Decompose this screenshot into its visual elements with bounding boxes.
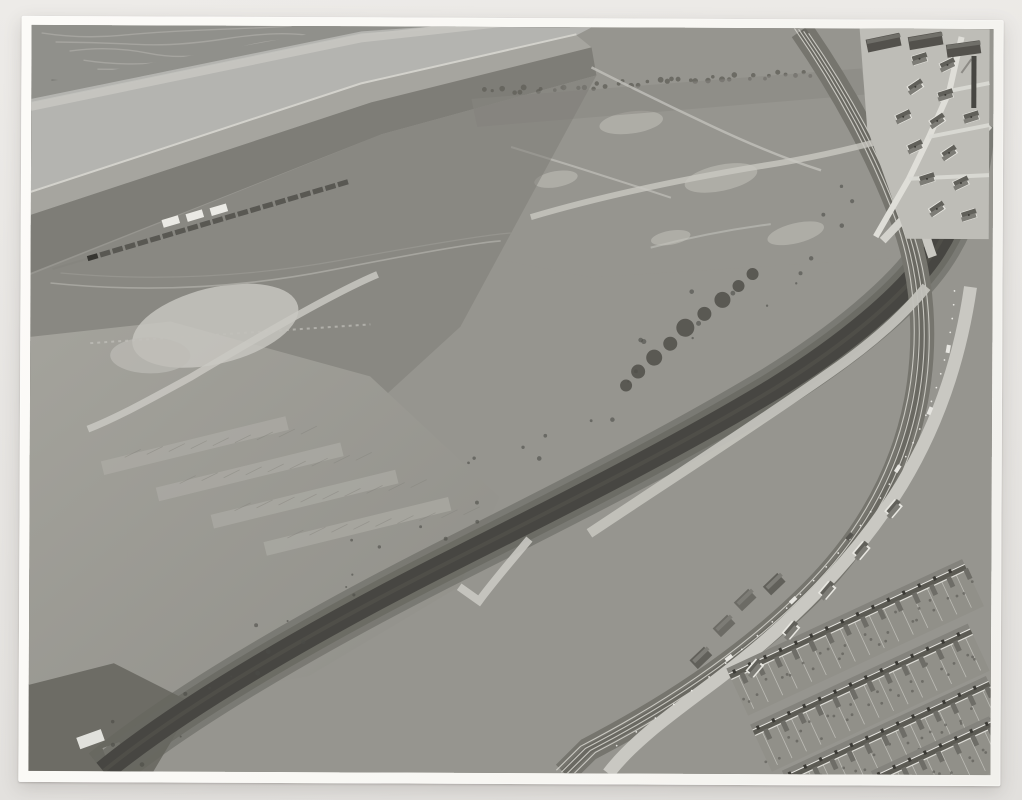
- scan-background: Aerial view of a large sawtooth-roofed f…: [0, 0, 1022, 800]
- photo-print: Aerial view of a large sawtooth-roofed f…: [18, 16, 1003, 786]
- photo-caption: Aerial view of a large sawtooth-roofed f…: [22, 16, 23, 17]
- aerial-photograph: [28, 25, 993, 775]
